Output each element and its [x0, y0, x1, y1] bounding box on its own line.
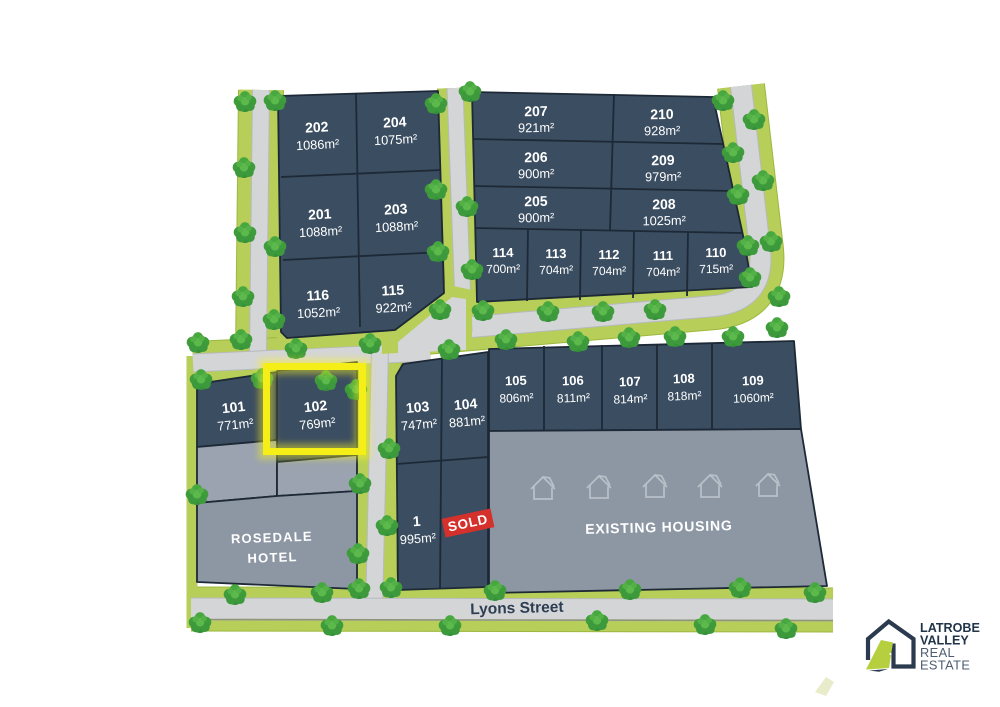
- svg-text:109: 109: [742, 373, 764, 389]
- svg-text:207: 207: [524, 103, 548, 119]
- svg-text:110: 110: [705, 245, 726, 260]
- svg-text:1052m²: 1052m²: [297, 304, 342, 321]
- svg-text:205: 205: [524, 193, 548, 209]
- svg-text:704m²: 704m²: [592, 264, 626, 279]
- svg-text:206: 206: [524, 149, 548, 165]
- svg-text:208: 208: [652, 196, 676, 212]
- svg-text:102: 102: [303, 397, 328, 415]
- svg-text:1086m²: 1086m²: [296, 136, 341, 153]
- svg-text:704m²: 704m²: [539, 263, 573, 278]
- svg-text:1088m²: 1088m²: [299, 223, 344, 240]
- svg-text:900m²: 900m²: [518, 166, 555, 182]
- svg-text:806m²: 806m²: [499, 390, 533, 405]
- svg-text:Lyons Street: Lyons Street: [470, 599, 564, 618]
- svg-text:818m²: 818m²: [667, 388, 701, 403]
- svg-text:111: 111: [653, 248, 674, 263]
- svg-text:107: 107: [619, 374, 641, 390]
- svg-text:114: 114: [492, 245, 514, 260]
- svg-text:113: 113: [545, 246, 566, 261]
- svg-text:103: 103: [405, 398, 430, 416]
- svg-text:928m²: 928m²: [644, 123, 681, 139]
- svg-text:715m²: 715m²: [699, 262, 733, 277]
- svg-text:704m²: 704m²: [646, 265, 680, 280]
- svg-text:900m²: 900m²: [518, 210, 555, 226]
- svg-text:106: 106: [562, 373, 584, 389]
- svg-text:204: 204: [383, 113, 407, 130]
- svg-text:115: 115: [381, 281, 405, 298]
- svg-text:979m²: 979m²: [645, 169, 682, 185]
- svg-text:1088m²: 1088m²: [375, 218, 420, 235]
- svg-text:210: 210: [650, 106, 674, 122]
- svg-text:1025m²: 1025m²: [642, 213, 686, 229]
- svg-text:201: 201: [308, 205, 332, 222]
- svg-text:105: 105: [505, 373, 527, 389]
- svg-text:112: 112: [598, 247, 619, 262]
- svg-text:1075m²: 1075m²: [374, 131, 419, 148]
- svg-text:814m²: 814m²: [613, 391, 647, 406]
- svg-text:HOTEL: HOTEL: [247, 549, 298, 566]
- svg-text:881m²: 881m²: [448, 412, 486, 430]
- svg-text:116: 116: [306, 286, 330, 303]
- svg-text:700m²: 700m²: [486, 262, 520, 277]
- svg-text:921m²: 921m²: [518, 120, 555, 136]
- svg-text:203: 203: [384, 200, 408, 217]
- svg-text:747m²: 747m²: [400, 415, 438, 433]
- svg-text:108: 108: [673, 371, 695, 387]
- svg-text:ROSEDALE: ROSEDALE: [231, 529, 313, 547]
- svg-text:ESTATE: ESTATE: [920, 658, 970, 673]
- svg-text:1: 1: [412, 513, 421, 530]
- svg-text:922m²: 922m²: [375, 299, 413, 316]
- svg-text:209: 209: [651, 152, 675, 168]
- svg-text:202: 202: [305, 118, 329, 135]
- svg-text:995m²: 995m²: [399, 530, 437, 548]
- svg-text:104: 104: [453, 395, 478, 413]
- svg-text:811m²: 811m²: [557, 390, 591, 405]
- svg-text:101: 101: [221, 398, 246, 416]
- svg-text:1060m²: 1060m²: [733, 390, 774, 405]
